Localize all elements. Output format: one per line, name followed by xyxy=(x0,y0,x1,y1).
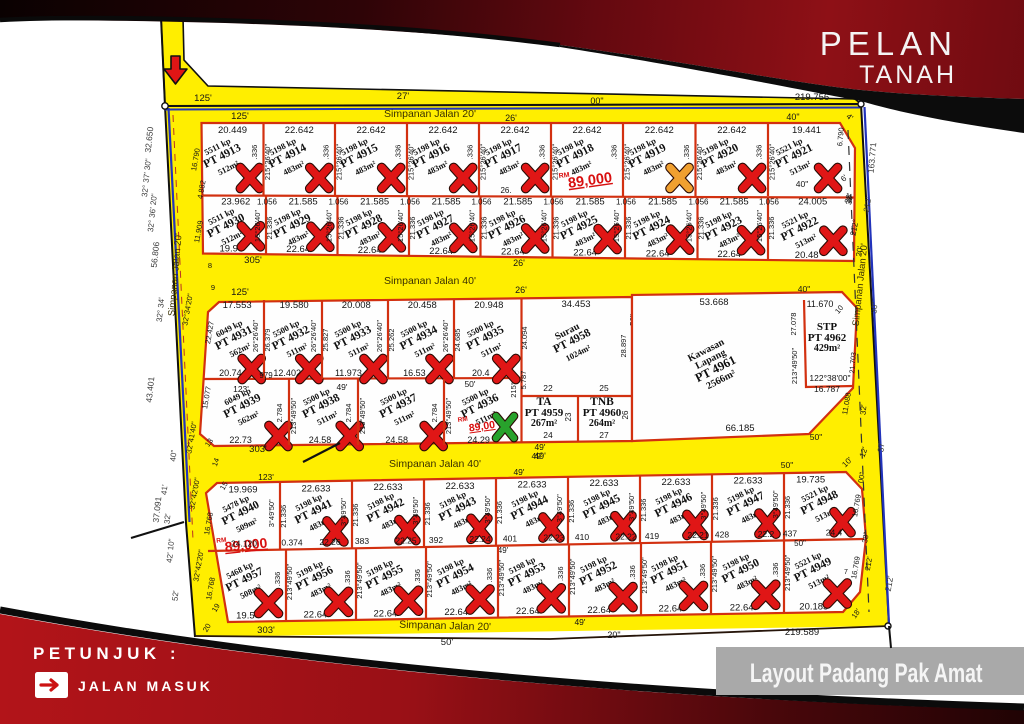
svg-text:26°26'40": 26°26'40" xyxy=(251,320,260,352)
svg-text:.336: .336 xyxy=(771,563,780,578)
svg-text:21.336: 21.336 xyxy=(408,217,417,240)
svg-text:20": 20" xyxy=(607,630,620,640)
svg-text:15°26'40": 15°26'40" xyxy=(253,210,262,242)
svg-text:2.784: 2.784 xyxy=(275,404,284,423)
svg-text:24.4: 24.4 xyxy=(826,528,843,538)
svg-text:21.585: 21.585 xyxy=(720,197,749,208)
svg-text:21.336: 21.336 xyxy=(567,500,576,523)
svg-text:22.64: 22.64 xyxy=(659,604,683,615)
svg-text:24.685: 24.685 xyxy=(453,329,462,352)
svg-text:26.379: 26.379 xyxy=(263,329,272,352)
svg-text:213°49'50": 213°49'50" xyxy=(640,557,649,594)
svg-text:15°26'40": 15°26'40" xyxy=(468,210,477,242)
svg-text:213°49'50": 213°49'50" xyxy=(444,398,453,435)
svg-text:0.374: 0.374 xyxy=(281,537,303,547)
svg-text:21.585: 21.585 xyxy=(360,197,389,208)
svg-text:.336: .336 xyxy=(343,570,352,585)
svg-text:32': 32' xyxy=(162,513,172,525)
svg-text:.336: .336 xyxy=(698,564,707,579)
svg-text:1.056: 1.056 xyxy=(257,198,278,207)
svg-text:21.336: 21.336 xyxy=(480,217,489,240)
svg-text:429m²: 429m² xyxy=(814,343,840,354)
svg-text:2.784: 2.784 xyxy=(430,404,439,423)
svg-text:19.441: 19.441 xyxy=(792,125,821,136)
svg-text:15°26'40": 15°26'40" xyxy=(612,210,621,242)
svg-text:24: 24 xyxy=(543,430,553,440)
svg-text:28.897: 28.897 xyxy=(619,335,628,358)
svg-text:50": 50" xyxy=(781,460,793,470)
svg-text:213°49'50": 213°49'50" xyxy=(358,398,367,435)
svg-text:.336: .336 xyxy=(755,145,764,160)
svg-text:32': 32' xyxy=(858,404,868,416)
svg-text:26°26'40": 26°26'40" xyxy=(375,320,384,352)
svg-text:49': 49' xyxy=(574,617,585,627)
svg-text:22.642: 22.642 xyxy=(285,125,314,136)
svg-text:1.056: 1.056 xyxy=(688,198,709,207)
svg-text:213°49'50": 213°49'50" xyxy=(710,556,719,593)
svg-text:21.336: 21.336 xyxy=(711,497,720,520)
svg-text:Simpanan Jalan 40': Simpanan Jalan 40' xyxy=(384,275,476,287)
svg-text:21.336: 21.336 xyxy=(767,217,776,240)
svg-text:305': 305' xyxy=(244,255,262,266)
svg-text:410: 410 xyxy=(575,532,589,542)
svg-text:22.642: 22.642 xyxy=(717,125,746,136)
svg-text:.336: .336 xyxy=(413,569,422,584)
svg-text:.336: .336 xyxy=(628,565,637,580)
svg-text:22.22: 22.22 xyxy=(615,531,637,541)
svg-text:15°26'40": 15°26'40" xyxy=(755,210,764,242)
svg-text:21.585: 21.585 xyxy=(503,197,532,208)
svg-text:40": 40" xyxy=(786,112,799,122)
svg-text:PELAN: PELAN xyxy=(820,25,958,62)
svg-text:21.336: 21.336 xyxy=(423,502,432,525)
svg-text:213°49'50": 213°49'50" xyxy=(783,554,792,591)
svg-text:22.64: 22.64 xyxy=(444,607,468,618)
svg-text:19.580: 19.580 xyxy=(280,300,309,311)
svg-text:22.26: 22.26 xyxy=(319,537,341,547)
svg-text:25: 25 xyxy=(599,383,609,393)
svg-text:66.185: 66.185 xyxy=(725,423,754,434)
svg-text:392: 392 xyxy=(429,535,443,545)
svg-text:3°49'50": 3°49'50" xyxy=(699,491,708,519)
svg-text:50": 50" xyxy=(810,432,822,442)
svg-text:3°49'50": 3°49'50" xyxy=(555,494,564,522)
svg-text:38': 38' xyxy=(844,193,855,205)
svg-text:20': 20' xyxy=(854,245,865,257)
svg-text:213°49'50": 213°49'50" xyxy=(289,398,298,435)
svg-text:21.336: 21.336 xyxy=(337,217,346,240)
svg-text:.336: .336 xyxy=(485,568,494,583)
svg-text:24.29: 24.29 xyxy=(467,435,490,445)
svg-text:1.056: 1.056 xyxy=(543,198,564,207)
svg-text:3°49'50": 3°49'50" xyxy=(339,498,348,526)
svg-text:123': 123' xyxy=(258,472,274,482)
svg-text:1.056: 1.056 xyxy=(759,198,780,207)
svg-text:213°49'50": 213°49'50" xyxy=(285,563,294,600)
svg-text:213°49'50": 213°49'50" xyxy=(425,561,434,598)
svg-text:49': 49' xyxy=(336,382,347,392)
svg-text:.336: .336 xyxy=(394,145,403,160)
svg-text:22.633: 22.633 xyxy=(373,482,402,493)
svg-text:3°49'50": 3°49'50" xyxy=(627,493,636,521)
svg-text:21.585: 21.585 xyxy=(432,197,461,208)
svg-text:401: 401 xyxy=(503,533,517,543)
svg-text:21.336: 21.336 xyxy=(279,505,288,528)
svg-text:53.668: 53.668 xyxy=(699,297,728,308)
svg-text:1.056: 1.056 xyxy=(328,198,349,207)
svg-text:.336: .336 xyxy=(250,145,259,160)
svg-text:22.21: 22.21 xyxy=(687,530,709,540)
svg-text:37': 37' xyxy=(875,440,886,452)
svg-text:219.589: 219.589 xyxy=(785,627,819,638)
svg-text:428: 428 xyxy=(715,530,729,540)
svg-text:215°26'40": 215°26'40" xyxy=(695,144,704,181)
svg-text:25.262: 25.262 xyxy=(387,329,396,352)
svg-text:26.: 26. xyxy=(500,186,511,195)
svg-text:30": 30" xyxy=(869,301,879,314)
svg-text:22.642: 22.642 xyxy=(356,125,385,136)
svg-text:49': 49' xyxy=(534,451,546,461)
svg-text:21.585: 21.585 xyxy=(648,197,677,208)
svg-text:125': 125' xyxy=(194,93,212,104)
svg-text:27: 27 xyxy=(599,430,609,440)
svg-text:22.642: 22.642 xyxy=(645,125,674,136)
svg-text:50': 50' xyxy=(441,637,454,648)
svg-text:215°26'40": 215°26'40" xyxy=(335,144,344,181)
svg-text:11.973: 11.973 xyxy=(335,368,362,378)
svg-text:979: 979 xyxy=(259,371,273,380)
svg-text:20.4: 20.4 xyxy=(472,368,490,378)
svg-text:15°26'40": 15°26'40" xyxy=(325,210,334,242)
svg-text:27': 27' xyxy=(397,91,410,102)
svg-text:23.962: 23.962 xyxy=(221,197,250,208)
svg-text:213°49'50": 213°49'50" xyxy=(790,348,799,385)
svg-text:22.64: 22.64 xyxy=(374,608,398,619)
svg-text:21.336: 21.336 xyxy=(697,217,706,240)
svg-text:19.969: 19.969 xyxy=(228,485,257,496)
svg-text:122°38'00": 122°38'00" xyxy=(809,373,850,383)
svg-text:25.827: 25.827 xyxy=(321,329,330,352)
svg-text:.336: .336 xyxy=(538,145,547,160)
svg-text:17.553: 17.553 xyxy=(223,300,252,311)
svg-text:1.056: 1.056 xyxy=(616,198,637,207)
svg-text:16.787: 16.787 xyxy=(814,384,840,394)
svg-text:RM: RM xyxy=(457,416,468,424)
svg-text:3°49'50": 3°49'50" xyxy=(771,490,780,518)
svg-text:19.735: 19.735 xyxy=(796,474,825,485)
svg-text:22.64: 22.64 xyxy=(304,609,328,620)
svg-text:11.670: 11.670 xyxy=(807,299,834,309)
svg-text:20.449: 20.449 xyxy=(218,125,247,136)
svg-text:.336: .336 xyxy=(466,145,475,160)
svg-text:3°49'50": 3°49'50" xyxy=(411,496,420,524)
svg-text:21.336: 21.336 xyxy=(552,217,561,240)
svg-text:27.078: 27.078 xyxy=(789,313,798,336)
svg-text:15°26'40": 15°26'40" xyxy=(685,210,694,242)
svg-text:21.585: 21.585 xyxy=(576,197,605,208)
svg-text:215°26'40": 215°26'40" xyxy=(768,144,777,181)
svg-text:24.58: 24.58 xyxy=(309,435,332,445)
svg-text:21.336: 21.336 xyxy=(783,496,792,519)
svg-text:41': 41' xyxy=(159,484,169,496)
svg-text:24.58: 24.58 xyxy=(385,435,408,445)
svg-text:21.336: 21.336 xyxy=(265,217,274,240)
svg-text:24.005: 24.005 xyxy=(798,197,827,208)
svg-text:49': 49' xyxy=(498,546,509,555)
svg-text:303': 303' xyxy=(257,625,275,636)
svg-text:Simpanan Jalan 20': Simpanan Jalan 20' xyxy=(384,108,476,120)
svg-text:40": 40" xyxy=(796,179,808,189)
svg-text:20.948: 20.948 xyxy=(474,300,503,311)
svg-text:22.633: 22.633 xyxy=(517,479,546,490)
svg-text:21.336: 21.336 xyxy=(495,501,504,524)
svg-text:267m²: 267m² xyxy=(531,418,557,429)
svg-text:22.633: 22.633 xyxy=(733,476,762,487)
svg-text:PETUNJUK :: PETUNJUK : xyxy=(33,644,180,663)
svg-text:22.642: 22.642 xyxy=(572,125,601,136)
svg-text:1.056: 1.056 xyxy=(471,198,492,207)
svg-text:22: 22 xyxy=(543,383,553,393)
svg-text:26': 26' xyxy=(515,285,527,295)
svg-text:22.2: 22.2 xyxy=(758,529,775,539)
svg-text:21.336: 21.336 xyxy=(639,498,648,521)
svg-text:.336: .336 xyxy=(556,566,565,581)
svg-text:Simpanan Jalan 20': Simpanan Jalan 20' xyxy=(399,619,491,633)
svg-text:215°26'40": 215°26'40" xyxy=(479,144,488,181)
svg-text:15°26'40": 15°26'40" xyxy=(396,210,405,242)
svg-text:26: 26 xyxy=(621,410,630,419)
svg-text:22.64: 22.64 xyxy=(516,606,540,617)
svg-text:2.784: 2.784 xyxy=(344,404,353,423)
svg-text:125': 125' xyxy=(231,111,249,122)
svg-text:.336: .336 xyxy=(682,145,691,160)
svg-text:50': 50' xyxy=(464,379,475,389)
svg-text:21.585: 21.585 xyxy=(289,197,318,208)
svg-text:125': 125' xyxy=(231,287,249,298)
svg-text:21.336: 21.336 xyxy=(351,504,360,527)
svg-text:215°26'40": 215°26'40" xyxy=(623,144,632,181)
svg-text:19.5: 19.5 xyxy=(236,611,255,622)
svg-text:26°26'40": 26°26'40" xyxy=(309,320,318,352)
svg-text:215°: 215° xyxy=(509,382,518,398)
svg-text:22.633: 22.633 xyxy=(301,483,330,494)
svg-text:123': 123' xyxy=(233,384,249,394)
svg-text:213°49'50": 213°49'50" xyxy=(568,558,577,595)
svg-text:6.790: 6.790 xyxy=(835,127,846,146)
svg-text:49': 49' xyxy=(513,467,524,477)
svg-text:40": 40" xyxy=(798,284,810,294)
svg-text:TANAH: TANAH xyxy=(859,61,957,89)
svg-text:3°49'50": 3°49'50" xyxy=(483,495,492,523)
svg-text:Simpanan Jalan 40': Simpanan Jalan 40' xyxy=(389,458,481,470)
svg-text:50": 50" xyxy=(794,539,806,548)
svg-text:22.64: 22.64 xyxy=(587,605,611,616)
svg-text:213°49'50": 213°49'50" xyxy=(497,560,506,597)
svg-text:22.633: 22.633 xyxy=(445,481,474,492)
svg-text:383: 383 xyxy=(355,536,369,546)
svg-text:16.53: 16.53 xyxy=(403,368,426,378)
svg-text:20.74: 20.74 xyxy=(219,368,242,378)
svg-text:00": 00" xyxy=(590,96,603,106)
svg-text:22.633: 22.633 xyxy=(589,478,618,489)
svg-text:26°26'40": 26°26'40" xyxy=(441,320,450,352)
svg-text:.336: .336 xyxy=(273,572,282,587)
svg-text:215°26'40": 215°26'40" xyxy=(407,144,416,181)
svg-text:26': 26' xyxy=(505,113,517,123)
svg-text:15°26'40": 15°26'40" xyxy=(540,210,549,242)
svg-text:22.23: 22.23 xyxy=(543,533,565,543)
svg-text:21.336: 21.336 xyxy=(624,217,633,240)
svg-text:24.094: 24.094 xyxy=(520,327,529,350)
svg-text:1.056: 1.056 xyxy=(400,198,421,207)
svg-text:22.642: 22.642 xyxy=(500,125,529,136)
svg-text:5.787: 5.787 xyxy=(519,371,528,390)
svg-text:52': 52' xyxy=(170,590,180,602)
svg-text:22.64: 22.64 xyxy=(730,603,754,614)
svg-text:215°26'40": 215°26'40" xyxy=(263,144,272,181)
svg-text:20.458: 20.458 xyxy=(408,300,437,311)
svg-text:20.48: 20.48 xyxy=(795,250,819,261)
svg-text:9: 9 xyxy=(211,283,215,292)
svg-text:26': 26' xyxy=(513,258,525,268)
svg-text:24.120: 24.120 xyxy=(231,538,257,548)
svg-text:264m²: 264m² xyxy=(589,418,615,429)
svg-text:3°49'50": 3°49'50" xyxy=(267,499,276,527)
svg-text:20.008: 20.008 xyxy=(342,300,371,311)
svg-text:23: 23 xyxy=(564,412,573,421)
svg-text:7: 7 xyxy=(844,569,848,576)
svg-text:8: 8 xyxy=(208,261,212,270)
svg-text:22.642: 22.642 xyxy=(428,125,457,136)
svg-text:34.453: 34.453 xyxy=(561,299,590,310)
svg-text:Layout Padang Pak Amat: Layout Padang Pak Amat xyxy=(750,658,983,688)
svg-text:.336: .336 xyxy=(610,145,619,160)
svg-text:419: 419 xyxy=(645,531,659,541)
svg-text:22.24: 22.24 xyxy=(469,534,491,544)
svg-text:40": 40" xyxy=(168,449,178,462)
svg-text:213°49'50": 213°49'50" xyxy=(355,562,364,599)
svg-text:.336: .336 xyxy=(322,145,331,160)
svg-text:303': 303' xyxy=(249,444,267,455)
svg-text:22.633: 22.633 xyxy=(661,477,690,488)
svg-text:437: 437 xyxy=(783,528,797,538)
svg-text:JALAN MASUK: JALAN MASUK xyxy=(78,678,213,694)
svg-text:22.25: 22.25 xyxy=(395,535,417,545)
